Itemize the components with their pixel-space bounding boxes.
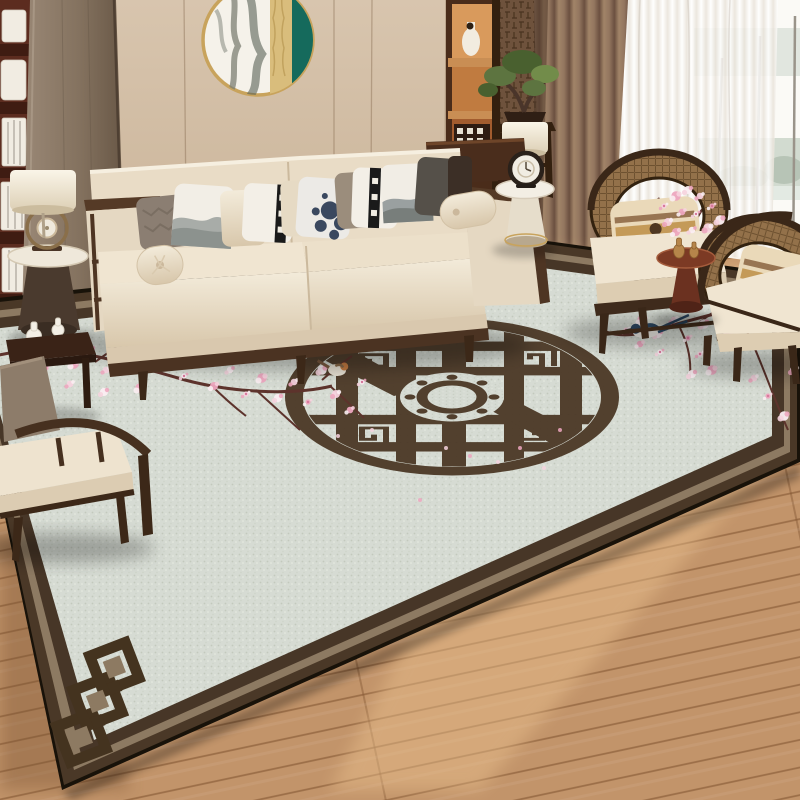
blossom xyxy=(698,211,701,214)
blossom xyxy=(496,460,500,464)
shelf-vase xyxy=(462,28,480,56)
blossom xyxy=(336,434,340,438)
blossom xyxy=(337,390,341,394)
blossom xyxy=(241,395,244,398)
blossom xyxy=(689,186,693,190)
blossom xyxy=(224,370,228,374)
blossom xyxy=(682,190,687,195)
blossom xyxy=(183,375,185,377)
blossom xyxy=(105,388,109,392)
blossom xyxy=(683,208,687,212)
blossom xyxy=(763,397,766,400)
blossom xyxy=(179,377,182,380)
blossom xyxy=(361,381,363,383)
scene-canvas xyxy=(0,0,800,800)
blossom xyxy=(310,399,313,402)
blossom xyxy=(71,380,75,384)
blossom xyxy=(307,401,309,403)
blossom xyxy=(694,196,698,200)
blossom xyxy=(693,226,697,230)
blossom xyxy=(711,205,713,207)
blossom xyxy=(784,411,789,416)
blossom xyxy=(262,373,267,378)
clock-ornament xyxy=(510,153,542,188)
blossom xyxy=(133,387,139,393)
blossom xyxy=(714,203,717,206)
blossom xyxy=(255,377,261,383)
blossom xyxy=(542,466,546,470)
blossom xyxy=(344,410,348,414)
blossom xyxy=(663,205,665,207)
blossom xyxy=(64,384,68,388)
blossom xyxy=(748,378,752,382)
red-table-top xyxy=(657,248,715,268)
blossom xyxy=(357,383,360,386)
blossom xyxy=(695,213,697,215)
blossom xyxy=(701,192,705,196)
blossom xyxy=(468,454,472,458)
blossom xyxy=(676,212,680,216)
blossom xyxy=(248,391,251,394)
blossom xyxy=(370,428,374,432)
blossom xyxy=(186,373,189,376)
blossom xyxy=(215,382,219,386)
blossom xyxy=(662,222,667,227)
blossom xyxy=(701,227,707,233)
blossom xyxy=(518,446,522,450)
blossom xyxy=(767,395,769,397)
blossom xyxy=(713,219,719,225)
blossom xyxy=(288,382,292,386)
blossom xyxy=(662,349,665,352)
blossom xyxy=(303,403,306,406)
blossom xyxy=(558,428,562,432)
blossom xyxy=(418,498,422,502)
blossom xyxy=(669,195,675,201)
blossom xyxy=(655,353,658,356)
blossom xyxy=(670,232,675,237)
living-room-photo xyxy=(0,0,800,800)
blossom xyxy=(351,406,355,410)
blossom xyxy=(245,393,247,395)
blossom xyxy=(208,386,213,391)
blossom xyxy=(666,203,669,206)
blossom xyxy=(707,207,710,210)
blossom xyxy=(686,230,690,234)
blossom xyxy=(708,223,713,228)
blossom xyxy=(659,351,661,353)
blossom xyxy=(699,353,701,355)
blossom xyxy=(444,446,448,450)
blossom xyxy=(272,398,277,403)
blossom xyxy=(770,393,773,396)
blossom xyxy=(100,370,104,374)
blossom xyxy=(659,207,662,210)
blossom xyxy=(677,228,681,232)
white-vase-left xyxy=(1,60,26,100)
blossom xyxy=(720,215,725,220)
blossom xyxy=(669,218,673,222)
blossom xyxy=(691,215,694,218)
blossom xyxy=(777,415,783,421)
blossom xyxy=(686,374,691,379)
blossom xyxy=(364,379,367,382)
blossom xyxy=(330,394,335,399)
blossom xyxy=(98,392,103,397)
blossom xyxy=(676,191,681,196)
blossom xyxy=(279,394,283,398)
